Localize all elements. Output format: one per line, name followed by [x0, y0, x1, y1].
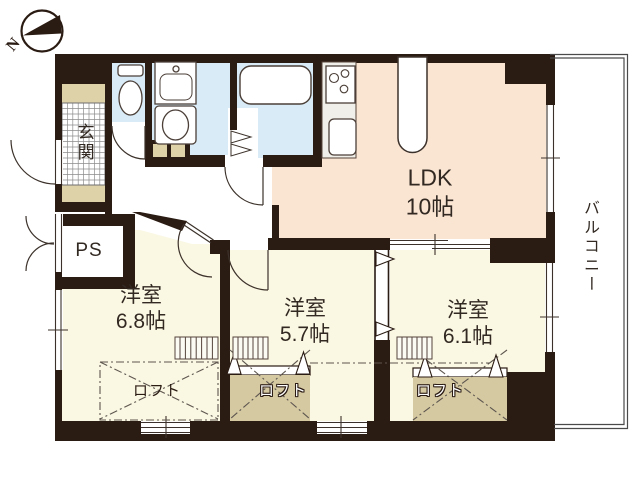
western-3-name: 洋室: [443, 298, 493, 324]
bathtub-fixture: [240, 66, 311, 104]
kitchen-stove: [326, 66, 355, 103]
floor-plan: N LDK 10帖 洋室 6.8帖 洋室 5.7帖 洋室 6.1帖 PS 玄関 …: [0, 0, 640, 480]
washing-machine-pan: [155, 106, 196, 144]
door-opening-room2: [228, 240, 268, 250]
western-1-size: 6.8帖: [116, 309, 166, 335]
room-label-western-3: 洋室 6.1帖: [443, 298, 493, 351]
loft-label-3: ロフト: [416, 383, 464, 402]
western-2-size: 5.7帖: [280, 322, 330, 348]
washbasin-fixture: [155, 62, 196, 104]
room-label-balcony: バルコニー: [579, 200, 599, 295]
ldk-size: 10帖: [406, 192, 455, 221]
room-label-ldk: LDK 10帖: [406, 163, 455, 221]
loft-label-1: ロフト: [133, 383, 181, 402]
western-2-name: 洋室: [280, 296, 330, 322]
kitchen-counter: [322, 62, 356, 158]
kitchen-sink: [329, 119, 356, 155]
room-label-western-2: 洋室 5.7帖: [280, 296, 330, 349]
ldk-name: LDK: [406, 163, 455, 192]
toilet-fixture: [118, 65, 143, 115]
kitchen-island-counter: [398, 57, 427, 153]
western-3-size: 6.1帖: [443, 324, 493, 350]
western-1-name: 洋室: [116, 283, 166, 309]
room-label-pipe-space: PS: [75, 239, 102, 263]
room-label-western-1: 洋室 6.8帖: [116, 283, 166, 336]
room-label-entrance: 玄関: [73, 123, 94, 163]
loft-label-2: ロフト: [259, 383, 307, 402]
